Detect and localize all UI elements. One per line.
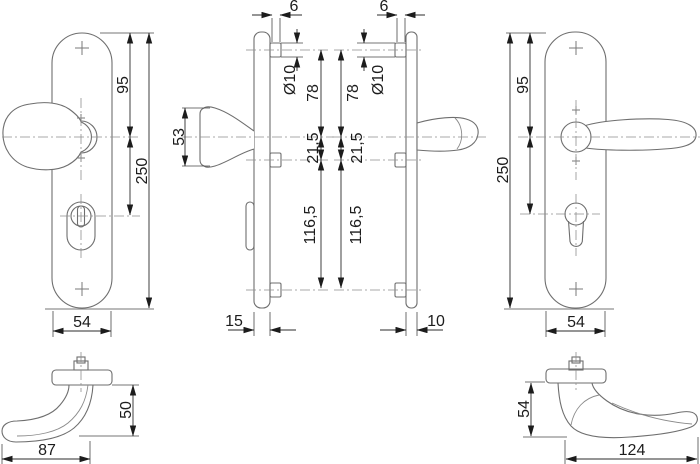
drawing-svg: 95 250 54 6 Ø10 53 78 <box>0 0 700 464</box>
dim-label-54: 54 <box>73 314 91 331</box>
plate-side-outline <box>406 32 417 308</box>
view-knob-side-profile: 6 Ø10 53 78 21,5 116,5 15 <box>171 0 334 336</box>
dim-label-21-5: 21,5 <box>349 132 366 163</box>
dim-label-116-5: 116,5 <box>348 205 365 244</box>
screw-cross-top <box>569 41 583 55</box>
view-lever-top: 54 124 <box>516 352 698 464</box>
dim-label-87: 87 <box>38 442 56 459</box>
dim-label-95: 95 <box>515 76 532 94</box>
view-knob-plate-front: 95 250 54 <box>2 33 154 337</box>
view-lever-plate-front: 95 250 54 <box>495 32 700 337</box>
knob-front-outline <box>3 103 92 170</box>
dim-label-21-5: 21,5 <box>305 132 322 163</box>
dim-label-50: 50 <box>118 401 135 419</box>
dim-label-124: 124 <box>619 442 646 459</box>
dim-label-54: 54 <box>516 400 533 418</box>
knob-grip-top-outline <box>2 385 93 442</box>
dim-label-116-5: 116,5 <box>302 205 319 244</box>
dim-label-10: 10 <box>427 313 445 330</box>
dim-label-d10: Ø10 <box>282 65 299 95</box>
extension-lines <box>357 18 417 336</box>
dim-label-6: 6 <box>380 0 389 15</box>
dim-label-54: 54 <box>567 314 585 331</box>
dim-label-95: 95 <box>115 76 132 94</box>
dim-label-78: 78 <box>305 84 322 102</box>
dim-label-15: 15 <box>225 313 243 330</box>
plate-side-outline <box>254 32 270 308</box>
view-lever-side-profile: 6 Ø10 78 21,5 116,5 10 <box>332 0 488 336</box>
lever-grip-top-outline <box>558 383 697 438</box>
dim-label-250: 250 <box>134 158 151 185</box>
dim-label-250: 250 <box>495 157 512 184</box>
dim-label-53: 53 <box>171 128 188 146</box>
knob-backplate-outline <box>52 33 112 308</box>
view-knob-top: 50 87 <box>2 352 139 464</box>
lever-backplate-outline <box>545 32 606 308</box>
cylinder-cover-side <box>246 202 254 250</box>
screw-cross-bottom <box>569 282 583 296</box>
screw-cross-top <box>75 41 89 55</box>
screw-cross-bottom <box>75 282 89 296</box>
technical-drawing-canvas: 95 250 54 6 Ø10 53 78 <box>0 0 700 464</box>
knob-rose-bar <box>52 370 112 385</box>
lever-side-profile <box>417 117 478 151</box>
dim-label-78: 78 <box>345 84 362 102</box>
lever-front-outline <box>584 119 696 150</box>
dim-label-d10: Ø10 <box>370 65 387 95</box>
dim-label-6: 6 <box>290 0 299 15</box>
